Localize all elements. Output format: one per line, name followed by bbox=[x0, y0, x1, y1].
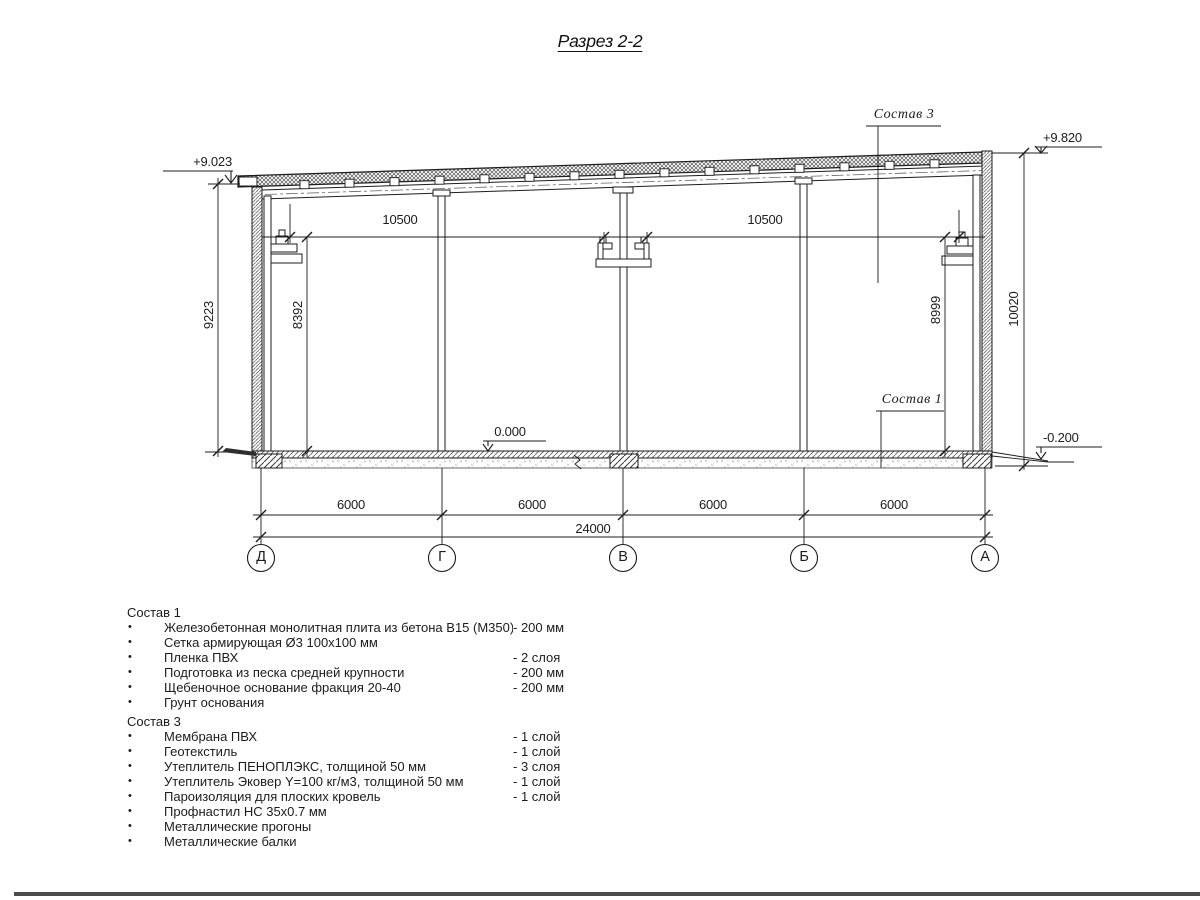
material-name: Подготовка из песка средней крупности bbox=[164, 665, 513, 680]
material-name: Грунт основания bbox=[164, 695, 513, 710]
elevation-left-top: +9.023 bbox=[150, 155, 232, 169]
elevation-right-bottom: -0.200 bbox=[1043, 431, 1079, 445]
composition-3-title: Состав 3 bbox=[127, 714, 647, 729]
material-item: • Геотекстиль - 1 слой bbox=[127, 744, 647, 759]
floor-slab bbox=[205, 448, 1074, 469]
axis-label-b: Б bbox=[790, 550, 818, 564]
material-value: - 1 слой bbox=[513, 729, 561, 744]
material-name: Металлические прогоны bbox=[164, 819, 513, 834]
material-value: - 200 мм bbox=[513, 620, 564, 635]
bullet-icon: • bbox=[127, 759, 164, 774]
axis-label-a: А bbox=[971, 550, 999, 564]
bullet-icon: • bbox=[127, 680, 164, 695]
material-item: • Пароизоляция для плоских кровель - 1 с… bbox=[127, 789, 647, 804]
material-item: • Утеплитель ПЕНОПЛЭКС, толщиной 50 мм -… bbox=[127, 759, 647, 774]
bullet-icon: • bbox=[127, 804, 164, 819]
dim-bay-1: 6000 bbox=[316, 498, 386, 512]
elevation-floor: 0.000 bbox=[480, 425, 540, 439]
material-value: - 200 мм bbox=[513, 680, 564, 695]
bullet-icon: • bbox=[127, 744, 164, 759]
callout-floor-composition: Состав 1 bbox=[872, 393, 952, 407]
dim-crane-span-right: 10500 bbox=[725, 213, 805, 227]
bullet-icon: • bbox=[127, 665, 164, 680]
dim-height-left-inner: 8392 bbox=[291, 285, 305, 345]
material-value: - 3 слоя bbox=[513, 759, 560, 774]
material-name: Мембрана ПВХ bbox=[164, 729, 513, 744]
dim-bay-2: 6000 bbox=[497, 498, 567, 512]
material-item: • Грунт основания bbox=[127, 695, 647, 710]
material-item: • Железобетонная монолитная плита из бет… bbox=[127, 620, 647, 635]
axis-label-g: Г bbox=[428, 550, 456, 564]
axis-label-d: Д bbox=[247, 550, 275, 564]
composition-3-list: • Мембрана ПВХ - 1 слой • Геотекстиль - … bbox=[127, 729, 647, 849]
roof bbox=[238, 152, 985, 199]
bullet-icon: • bbox=[127, 620, 164, 635]
axis-label-v: В bbox=[609, 550, 637, 564]
material-item: • Сетка армирующая Ø3 100х100 мм bbox=[127, 635, 647, 650]
bullet-icon: • bbox=[127, 650, 164, 665]
dim-crane-span-left: 10500 bbox=[360, 213, 440, 227]
callout-roof-composition: Состав 3 bbox=[864, 108, 944, 122]
material-item: • Металлические балки bbox=[127, 834, 647, 849]
material-value: - 1 слой bbox=[513, 774, 561, 789]
bullet-icon: • bbox=[127, 834, 164, 849]
dim-height-left-outer: 9223 bbox=[202, 285, 216, 345]
material-name: Утеплитель ПЕНОПЛЭКС, толщиной 50 мм bbox=[164, 759, 513, 774]
bullet-icon: • bbox=[127, 635, 164, 650]
dim-height-right-outer: 10020 bbox=[1007, 279, 1021, 339]
bullet-icon: • bbox=[127, 774, 164, 789]
material-name: Щебеночное основание фракция 20-40 bbox=[164, 680, 513, 695]
material-name: Сетка армирующая Ø3 100х100 мм bbox=[164, 635, 513, 650]
drawing-sheet: Разрез 2-2 +9.023 +9.820 0.000 -0.200 Со… bbox=[0, 0, 1200, 900]
material-name: Геотекстиль bbox=[164, 744, 513, 759]
dim-total: 24000 bbox=[553, 522, 633, 536]
drawing-title: Разрез 2-2 bbox=[0, 34, 1200, 48]
bullet-icon: • bbox=[127, 789, 164, 804]
material-value: - 1 слой bbox=[513, 744, 561, 759]
material-name: Пароизоляция для плоских кровель bbox=[164, 789, 513, 804]
material-name: Пленка ПВХ bbox=[164, 650, 513, 665]
material-item: • Профнастил НС 35х0.7 мм bbox=[127, 804, 647, 819]
elevation-right-top: +9.820 bbox=[1043, 131, 1082, 145]
material-value: - 1 слой bbox=[513, 789, 561, 804]
bullet-icon: • bbox=[127, 819, 164, 834]
material-item: • Пленка ПВХ - 2 слоя bbox=[127, 650, 647, 665]
material-lists: Состав 1 • Железобетонная монолитная пли… bbox=[127, 605, 647, 849]
dim-height-right-inner: 8999 bbox=[929, 280, 943, 340]
material-item: • Мембрана ПВХ - 1 слой bbox=[127, 729, 647, 744]
dim-bay-4: 6000 bbox=[859, 498, 929, 512]
window-bottom-edge bbox=[14, 892, 1200, 896]
material-name: Железобетонная монолитная плита из бетон… bbox=[164, 620, 513, 635]
dimension-lines bbox=[208, 153, 1048, 544]
material-value: - 2 слоя bbox=[513, 650, 560, 665]
bullet-icon: • bbox=[127, 729, 164, 744]
material-value: - 200 мм bbox=[513, 665, 564, 680]
bullet-icon: • bbox=[127, 695, 164, 710]
material-item: • Подготовка из песка средней крупности … bbox=[127, 665, 647, 680]
composition-1-list: • Железобетонная монолитная плита из бет… bbox=[127, 620, 647, 710]
material-item: • Щебеночное основание фракция 20-40 - 2… bbox=[127, 680, 647, 695]
material-name: Профнастил НС 35х0.7 мм bbox=[164, 804, 513, 819]
material-name: Утеплитель Эковер Y=100 кг/м3, толщиной … bbox=[164, 774, 513, 789]
composition-1-title: Состав 1 bbox=[127, 605, 647, 620]
material-name: Металлические балки bbox=[164, 834, 513, 849]
material-item: • Металлические прогоны bbox=[127, 819, 647, 834]
dim-bay-3: 6000 bbox=[678, 498, 748, 512]
material-item: • Утеплитель Эковер Y=100 кг/м3, толщино… bbox=[127, 774, 647, 789]
